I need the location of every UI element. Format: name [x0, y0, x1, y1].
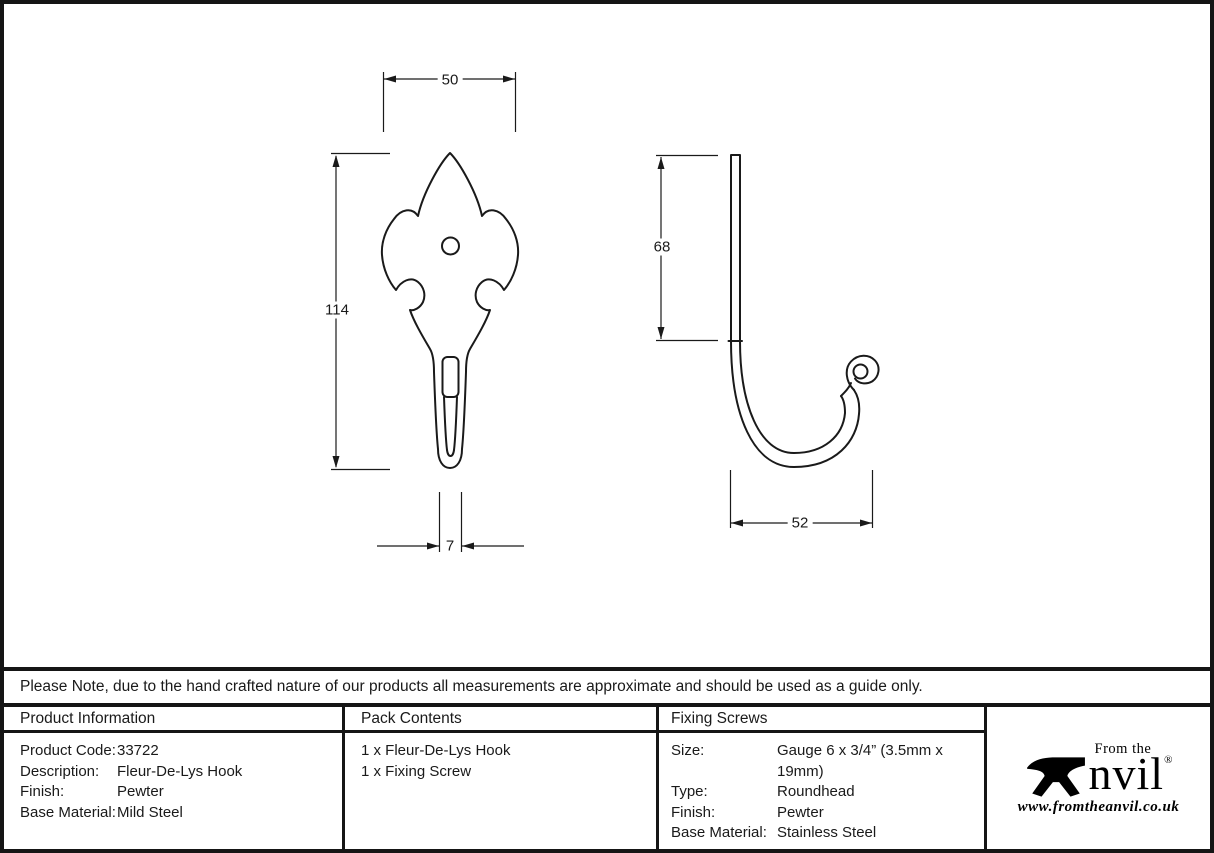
side-view-curl-outer — [847, 356, 879, 390]
list-item: 1 x Fleur-De-Lys Hook — [361, 741, 650, 762]
side-view-hook-outer — [731, 341, 859, 467]
screw-hole — [442, 238, 459, 255]
dim-label-projection: 52 — [788, 515, 813, 532]
dimension-lines — [331, 72, 873, 552]
product-information-header: Product Information — [4, 707, 345, 733]
technical-drawing-area: 50 114 7 68 52 — [4, 4, 1210, 667]
brand-logo: From the nvil ® — [1025, 741, 1173, 799]
side-view-plate-edge — [731, 155, 740, 341]
anvil-icon — [1025, 755, 1087, 799]
row-value: Pewter — [777, 803, 824, 824]
dim-label-front-width: 50 — [438, 72, 463, 89]
row-label: Finish: — [20, 782, 117, 803]
row-label: Type: — [671, 782, 777, 803]
table-row: Base Material: Mild Steel — [20, 803, 336, 824]
row-label: Base Material: — [671, 823, 777, 844]
table-row: Size: Gauge 6 x 3/4” (3.5mm x 19mm) — [671, 741, 978, 782]
row-label: Base Material: — [20, 803, 117, 824]
dimension-arrowheads — [333, 76, 873, 550]
row-value: Roundhead — [777, 782, 855, 803]
stem-hook-detail — [443, 357, 459, 397]
dim-label-shank-length: 68 — [650, 239, 675, 256]
pack-contents-header: Pack Contents — [345, 707, 659, 733]
table-row: Finish: Pewter — [20, 782, 336, 803]
row-value: Stainless Steel — [777, 823, 876, 844]
table-row: Finish: Pewter — [671, 803, 978, 824]
pack-contents-body: 1 x Fleur-De-Lys Hook 1 x Fixing Screw — [345, 733, 659, 849]
stem-inner-cap — [447, 450, 454, 456]
row-value: Mild Steel — [117, 803, 183, 824]
list-item: 1 x Fixing Screw — [361, 762, 650, 783]
brand-main-text: nvil — [1089, 752, 1165, 796]
spec-sheet-page: 50 114 7 68 52 Please Note, due to the h… — [0, 0, 1214, 853]
row-label: Product Code: — [20, 741, 117, 762]
row-label: Size: — [671, 741, 777, 782]
row-value: 33722 — [117, 741, 159, 762]
product-information-body: Product Code: 33722 Description: Fleur-D… — [4, 733, 345, 849]
spec-table: Product Information Pack Contents Fixing… — [4, 707, 1210, 849]
side-view-curl-join — [841, 383, 851, 396]
side-view-hook-inner — [740, 341, 845, 453]
stem-inner-left — [444, 397, 447, 450]
measurement-note-text: Please Note, due to the hand crafted nat… — [20, 678, 923, 696]
dim-label-front-height: 114 — [321, 302, 353, 319]
row-value: Gauge 6 x 3/4” (3.5mm x 19mm) — [777, 741, 978, 782]
row-label: Description: — [20, 762, 117, 783]
brand-website: www.fromtheanvil.co.uk — [1018, 799, 1180, 816]
row-value: Fleur-De-Lys Hook — [117, 762, 242, 783]
row-value: Pewter — [117, 782, 164, 803]
table-row: Description: Fleur-De-Lys Hook — [20, 762, 336, 783]
technical-drawing — [4, 4, 1210, 667]
table-row: Base Material: Stainless Steel — [671, 823, 978, 844]
side-view-curl-eye — [854, 365, 868, 379]
brand-logo-cell: From the nvil ® www.fromtheanvil.co.uk — [987, 707, 1210, 849]
measurement-note-row: Please Note, due to the hand crafted nat… — [4, 667, 1210, 707]
fixing-screws-header: Fixing Screws — [659, 707, 987, 733]
table-row: Type: Roundhead — [671, 782, 978, 803]
brand-logo-text: From the nvil ® — [1089, 741, 1173, 796]
table-row: Product Code: 33722 — [20, 741, 336, 762]
stem-inner-right — [454, 397, 457, 450]
registered-mark: ® — [1164, 754, 1172, 766]
row-label: Finish: — [671, 803, 777, 824]
fixing-screws-body: Size: Gauge 6 x 3/4” (3.5mm x 19mm) Type… — [659, 733, 987, 849]
dim-label-stem-width: 7 — [442, 538, 458, 555]
front-view-outline — [382, 153, 518, 468]
